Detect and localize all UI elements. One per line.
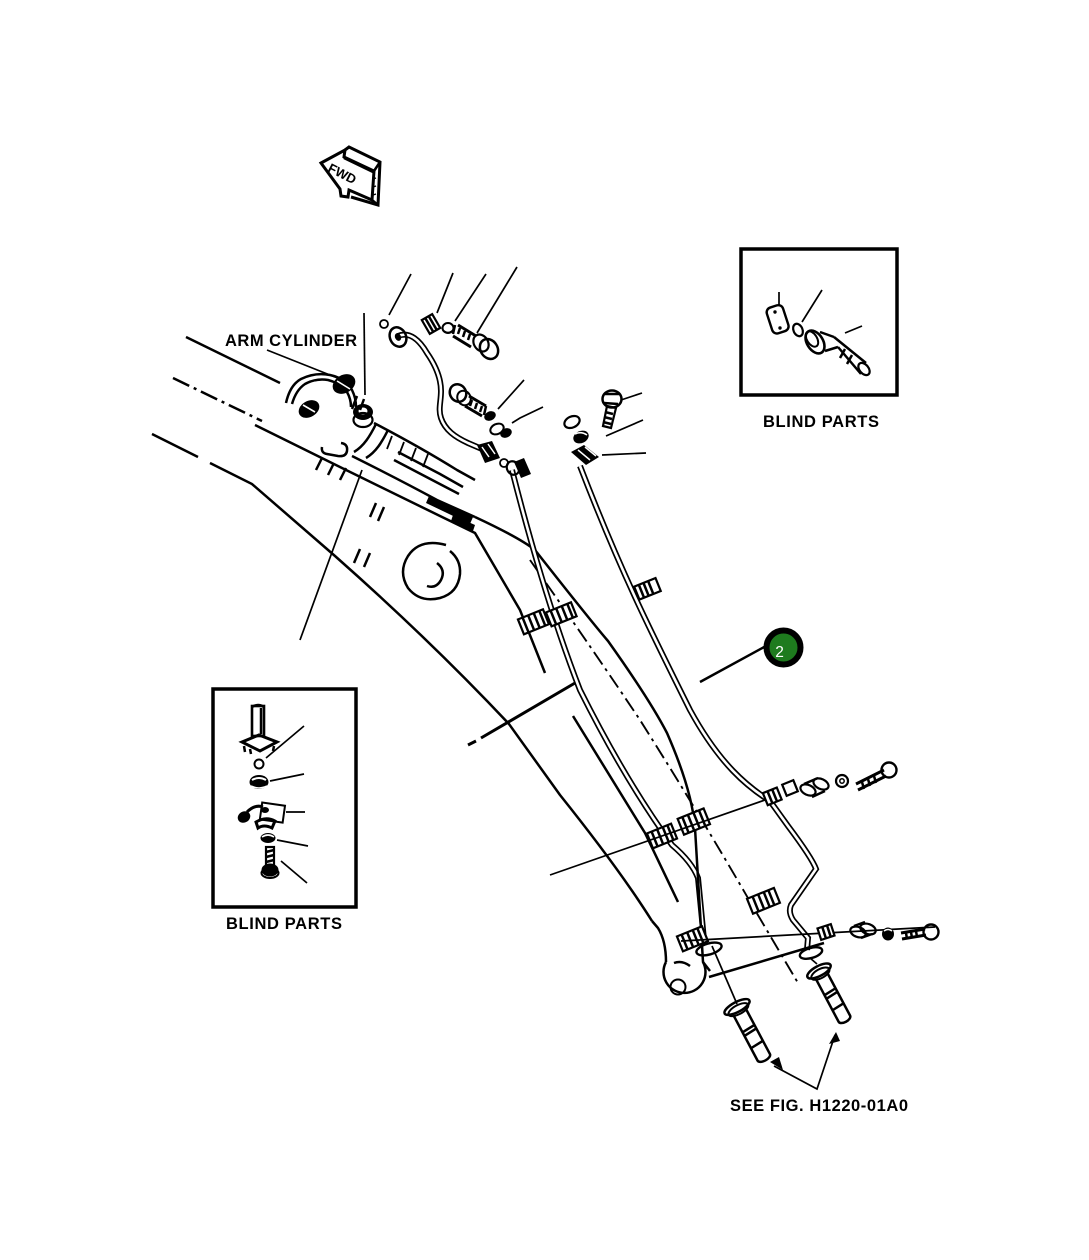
svg-text:BLIND PARTS: BLIND PARTS (226, 915, 342, 933)
svg-text:ARM CYLINDER: ARM CYLINDER (225, 332, 357, 350)
svg-text:BLIND PARTS: BLIND PARTS (763, 413, 879, 431)
svg-text:2: 2 (775, 644, 784, 661)
svg-text:SEE FIG. H1220-01A0: SEE FIG. H1220-01A0 (730, 1097, 908, 1115)
